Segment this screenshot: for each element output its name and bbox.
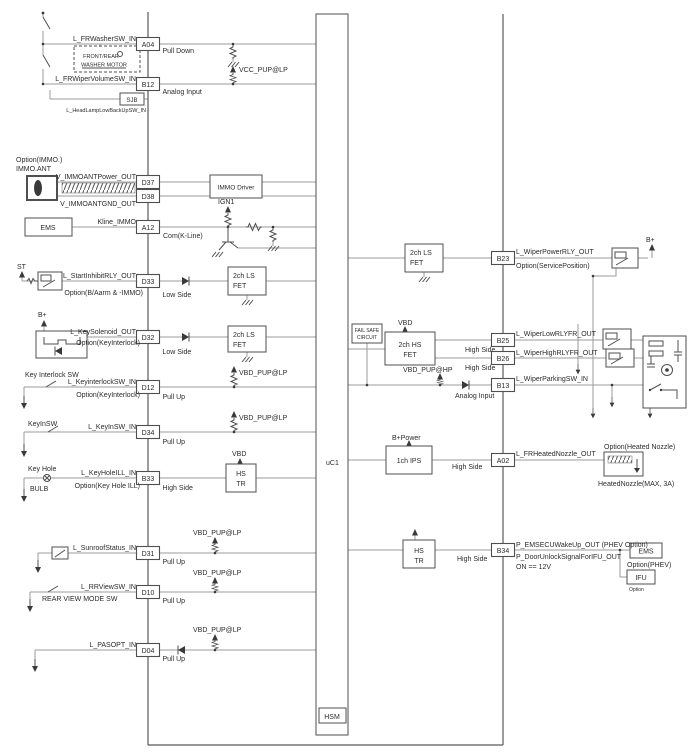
pin-signal-label: L_WiperParkingSW_IN [516,376,588,383]
heated-nozzle: Option(Heated Nozzle) HeatedNozzle(MAX, … [598,444,675,488]
b13-analog-input: VBD_PUP@HP [366,367,469,390]
wiring-diagram-page: uC1 HSM FRONT/REAR WASHER MOTOR SJB L_He… [0,0,699,753]
mcu-column: uC1 HSM [316,14,348,735]
pin-id: A04 [142,42,155,49]
pin-mode-label: Pull Up [163,394,186,401]
d12-pullup: VBD_PUP@LP [231,366,288,388]
pin-mode-label: High Side [465,365,495,372]
pin-id: D37 [142,180,155,187]
immo-driver: IMMO Driver [210,175,262,198]
pin-signal-label: L_StartInhibitRLY_OUT [63,273,137,280]
key-interlock-switch: Key Interlock SW [21,372,79,409]
power-arrow-icon [231,411,237,418]
ifu-label: IFU [635,575,646,582]
d10-pullup: VBD_PUP@LP [193,570,242,593]
pin-signal-label: L_WiperPowerRLY_OUT [516,249,594,256]
diode-icon [462,381,469,390]
heated-nozzle-option-label: Option(Heated Nozzle) [604,444,675,451]
pin-id: D33 [142,279,155,286]
ems-label: EMS [638,549,654,556]
wiper-motor-box [643,336,686,408]
ground-icon [27,599,33,612]
pin-D33: D33 [137,275,160,288]
pin-option-label: Option(B/Aarm & -IMMO) [64,290,143,297]
pin-signal-label: L_KeyInSW_IN [88,424,136,431]
ifu-option-label: Option [629,587,644,593]
power-arrow-icon [212,634,218,641]
pasopt-ground [32,659,38,672]
pin-id: D31 [142,551,155,558]
ems-option-label: Option(PHEV) [627,562,671,569]
ems-label: EMS [40,225,56,232]
ground-icon [648,408,653,418]
vbd-label: VBD [398,320,412,327]
ips-label: 1ch IPS [397,458,422,465]
vbd-pup-lp-label: VBD_PUP@LP [239,415,288,422]
diode-icon [182,333,189,342]
ground-icon [242,300,253,305]
pin-B34: B34 [492,544,515,557]
key-hole-bulb: Key Hole BULB [21,466,57,502]
ground-icon [212,252,223,257]
sjb-label: SJB [126,98,137,104]
pin-id: B26 [497,356,510,363]
ls-fet-label-2: FET [410,260,424,267]
start-inhibit-relay: ST [17,264,62,290]
ls-fet-label-2: FET [233,342,247,349]
ground-icon [32,659,38,672]
resistor-icon [212,583,218,592]
hs-tr-label-1: HS [414,548,424,555]
vbd-label: VBD [232,451,246,458]
vbd-pup-hp-label: VBD_PUP@HP [403,367,453,374]
st-label: ST [17,264,27,271]
pin-id: A02 [497,458,510,465]
pin-id: B25 [497,338,510,345]
fail-safe-circuit: FAIL SAFE CIRCUIT [352,324,382,343]
immo-driver-label: IMMO Driver [218,185,256,192]
resistor-icon [270,228,276,242]
pin-signal-label: V_IMMOANTPower_OUT [56,174,137,181]
wiper-power-relay: B+ [612,237,655,268]
fail-safe-label-1: FAIL SAFE [355,328,380,334]
ems-left: EMS [25,218,72,236]
sjb-circuit: SJB L_HeadLampLowBackUpSW_IN [66,93,146,114]
b-power-label: B+Power [392,435,421,442]
pin-mode-label: Pull Down [163,48,195,55]
hs-tr-label-2: TR [236,481,245,488]
keyin-switch: KeyInSW [21,421,58,457]
pin-mode-label: Pull Up [163,656,186,663]
switch-icon [48,586,58,592]
d34-pullup: VBD_PUP@LP [231,411,288,433]
hs-fet-label-2: FET [403,352,417,359]
resistor-icon [231,373,237,387]
pin-id: A12 [142,225,155,232]
d31-pullup: VBD_PUP@LP [193,530,242,554]
pin-signal-label: V_IMMOANTGND_OUT [60,201,137,208]
pin-mode-label: High Side [163,485,193,492]
resistor-icon [225,213,231,227]
sunroof-switch [35,547,68,573]
pin-option-label: Option(KeyInterlock) [76,392,140,399]
pin-option-label: Option(KeyInterlock) [76,340,140,347]
ground-icon [228,62,239,67]
ground-icon [242,357,253,362]
vbd-pup-lp-label: VBD_PUP@LP [193,530,242,537]
power-arrow-icon [19,271,25,278]
pin-id: B34 [497,548,510,555]
resistor-icon [212,640,218,650]
pin-mode-label: Pull Up [163,559,186,566]
pin-id: D38 [142,194,155,201]
pin-signal-label: L_RRViewSW_IN [81,584,136,591]
power-arrow-icon [212,577,218,584]
ls-fet-label-1: 2ch LS [410,250,432,257]
pin-mode-label: Analog Input [163,89,202,96]
ground-icon [610,397,615,407]
switch-icon [43,55,50,67]
ground-icon [591,408,596,418]
pin-mode-label: High Side [465,347,495,354]
pin-signal2-label: P_DoorUnlockSignalForIFU_OUT [516,554,622,561]
ground-icon [35,560,41,573]
coil-icon [62,183,135,193]
pin-signal-label: L_WiperLowRLYFR_OUT [516,331,597,338]
pin-signal-label: Kline_IMMO [97,219,136,226]
right-pins: B23 L_WiperPowerRLY_OUT Option(ServicePo… [452,249,648,571]
antenna-coil-icon [34,180,42,196]
pin-signal-label: L_KeyHoleILL_IN [81,470,136,477]
power-arrow-icon [649,244,655,251]
pin-signal-label: L_FRHeatedNozzle_OUT [516,451,596,458]
washer-motor-label-1: FRONT/REAR [83,54,119,60]
pin-signal-label: L_PASOPT_IN [89,642,136,649]
pin-id: B12 [142,82,155,89]
pin-signal-label: L_FRWiperVolumeSW_IN [55,76,136,83]
vbd-pup-lp-label: VBD_PUP@LP [193,627,242,634]
pin-id: D34 [142,430,155,437]
power-arrow-icon [225,206,231,213]
keyin-sw-label: KeyInSW [28,421,58,428]
pin-id: B33 [142,476,155,483]
immo-option-label: Option(IMMO.) [16,157,62,164]
d33-ls-fet: 2ch LS FET [182,267,266,305]
bcm-wiring-diagram: uC1 HSM FRONT/REAR WASHER MOTOR SJB L_He… [0,0,699,753]
pin-mode-label: High Side [457,556,487,563]
pin-id: B13 [497,383,510,390]
pin-D34: D34 [137,426,160,439]
pin-id: D32 [142,335,155,342]
headlamp-signal-label: L_HeadLampLowBackUpSW_IN [66,108,146,114]
immo-ant-label: IMMO.ANT [16,166,52,173]
pin-option-label: Option(ServicePosition) [516,263,590,270]
pin-id: D10 [142,590,155,597]
pin-D10: D10 [137,586,160,599]
ground-icon [21,444,27,457]
resistor-icon [230,45,236,59]
b34-hs-tr: HS TR [403,529,435,568]
pin-B26: B26 [492,352,515,365]
power-arrow-icon [412,529,418,536]
switch-icon [43,17,50,29]
key-hole-label: Key Hole [28,466,57,473]
pin-id: D04 [142,648,155,655]
pin-note-label: ON == 12V [516,564,551,571]
pin-mode-label: Pull Up [163,598,186,605]
diode-icon [178,646,185,655]
heated-nozzle-label: HeatedNozzle(MAX, 3A) [598,481,674,488]
pin-D04: D04 [137,644,160,657]
d32-ls-fet: 2ch LS FET [182,326,266,362]
pin-id: B23 [497,256,510,263]
pin-mode-label: High Side [452,464,482,471]
fail-safe-label-2: CIRCUIT [357,335,377,341]
pin-id: D12 [142,385,155,392]
resistor-icon [212,543,218,553]
ground-icon [21,396,27,409]
pin-A02: A02 [492,454,515,467]
pin-B13: B13 [492,379,515,392]
ground-icon [21,489,27,502]
power-arrow-icon [231,366,237,373]
hsm-label: HSM [324,714,340,721]
ground-icon [268,246,279,251]
vbd-pup-lp-label: VBD_PUP@LP [239,370,288,377]
pin-mode-label: Low Side [163,349,192,356]
resistor-icon [231,418,237,432]
pin-B12: B12 [137,78,160,91]
b33-hs-tr: VBD HS TR [226,451,256,492]
resistor-icon [230,73,236,84]
ls-fet-label-1: 2ch LS [233,332,255,339]
ls-fet-box [405,244,443,272]
pin-signal-label: L_KeySolenoid_OUT [70,329,136,336]
vbd-pup-lp-label: VBD_PUP@LP [193,570,242,577]
ls-fet-label-2: FET [233,283,247,290]
pin-D31: D31 [137,547,160,560]
ls-fet-box [228,267,266,295]
heater-resistor-icon [608,456,632,463]
ground-icon [419,277,430,282]
a02-ips: B+Power 1ch IPS [386,435,432,474]
ign1-label: IGN1 [218,199,234,206]
pin-signal-label: L_WiperHighRLYFR_OUT [516,350,598,357]
rear-view-sw-label: REAR VIEW MODE SW [42,596,118,603]
pin-mode-label: Low Side [163,292,192,299]
pin-mode-label: Com(K-Line) [163,233,203,240]
power-arrow-icon [41,320,47,327]
pin-B23: B23 [492,252,515,265]
bulb-label: BULB [30,486,49,493]
a04-pulldown [228,43,239,67]
b12-pullup: VCC_PUP@LP [230,66,288,85]
washer-switch-circuit: FRONT/REAR WASHER MOTOR [42,12,140,86]
diode-icon [182,277,189,286]
bplus-label: B+ [38,312,47,319]
pin-mode-label: Analog Input [455,393,494,400]
pin-signal-label: L_FRWasherSW_IN [73,36,136,43]
hs-tr-label-1: HS [236,471,246,478]
bplus-label: B+ [646,237,655,244]
pin-signal-label: P_EMSECUWakeUp_OUT (PHEV Option) [516,542,648,549]
mcu-label: uC1 [326,460,339,467]
key-interlock-sw-label: Key Interlock SW [25,372,79,379]
pin-B25: B25 [492,334,515,347]
pin-A12: A12 [137,221,160,234]
pin-signal-label: L_SunroofStatus_IN [73,545,136,552]
ground-icon [576,364,581,374]
power-arrow-icon [212,537,218,544]
pin-D38: D38 [137,190,160,203]
pin-signal-label: L_KeyinterlockSW_IN [68,379,136,386]
pin-option-label: Option(Key Hole ILL) [75,483,140,490]
pin-A04: A04 [137,38,160,51]
hs-fet-label-1: 2ch HS [399,342,422,349]
hs-tr-label-2: TR [414,558,423,565]
hs-fet-circuit: VBD 2ch HS FET [385,320,435,365]
wiper-low-relay [603,329,631,349]
switch-icon [46,381,56,387]
pin-D37: D37 [137,176,160,189]
vcc-pup-label: VCC_PUP@LP [239,67,288,74]
ls-fet-label-1: 2ch LS [233,273,255,280]
pin-mode-label: Pull Up [163,439,186,446]
